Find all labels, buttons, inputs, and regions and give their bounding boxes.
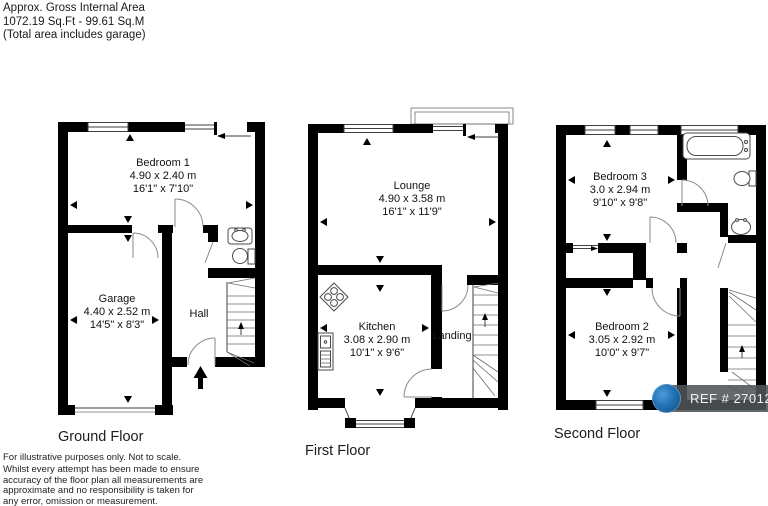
header-line-3: (Total area includes garage) bbox=[3, 29, 146, 43]
second-windows bbox=[573, 126, 738, 410]
room-name: Landing bbox=[415, 330, 489, 343]
room-metric: 4.90 x 3.58 m bbox=[342, 193, 482, 206]
room-label-landing: Landing bbox=[415, 330, 489, 343]
bathroom-fixtures bbox=[683, 133, 756, 235]
disclaimer-paragraph: Whilst every attempt has been made to en… bbox=[3, 465, 203, 506]
room-name: Garage bbox=[47, 293, 187, 306]
room-label-bedroom3: Bedroom 3 3.0 x 2.94 m 9'10" x 9'8" bbox=[550, 171, 690, 210]
floorplan-page: Approx. Gross Internal Area 1072.19 Sq.F… bbox=[0, 0, 768, 506]
room-imperial: 10'0" x 9'7" bbox=[552, 347, 692, 360]
bay-window bbox=[345, 408, 415, 428]
basin-icon bbox=[732, 220, 751, 235]
balcony-outline bbox=[411, 108, 513, 124]
room-label-garage: Garage 4.40 x 2.52 m 14'5" x 8'3" bbox=[47, 293, 187, 332]
room-imperial: 16'1" x 7'10" bbox=[93, 183, 233, 196]
room-imperial: 16'1" x 11'9" bbox=[342, 206, 482, 219]
room-label-lounge: Lounge 4.90 x 3.58 m 16'1" x 11'9" bbox=[342, 180, 482, 219]
room-imperial: 10'1" x 9'6" bbox=[307, 347, 447, 360]
header-line-2: 1072.19 Sq.Ft - 99.61 Sq.M bbox=[3, 16, 146, 30]
room-name: Bedroom 2 bbox=[552, 321, 692, 334]
reference-number: REF # 2701266 bbox=[690, 391, 768, 406]
room-label-bedroom1: Bedroom 1 4.90 x 2.40 m 16'1" x 7'10" bbox=[93, 157, 233, 196]
room-metric: 3.0 x 2.94 m bbox=[550, 184, 690, 197]
room-metric: 4.40 x 2.52 m bbox=[47, 306, 187, 319]
entrance-arrow-icon bbox=[194, 366, 208, 389]
room-label-hall: Hall bbox=[177, 308, 221, 321]
disclaimer-line-5: any error, omission or measurement. bbox=[3, 497, 203, 506]
ground-floor-plan bbox=[55, 100, 270, 420]
first-floor-plan bbox=[295, 100, 520, 435]
room-imperial: 14'5" x 8'3" bbox=[47, 319, 187, 332]
ground-doors bbox=[133, 199, 215, 365]
first-walls bbox=[308, 124, 508, 410]
room-name: Bedroom 1 bbox=[93, 157, 233, 170]
second-stairs bbox=[728, 290, 756, 398]
first-slider-door bbox=[433, 124, 499, 140]
ground-wc-fixtures bbox=[228, 228, 255, 264]
ground-floor-label: Ground Floor bbox=[58, 429, 143, 445]
room-metric: 4.90 x 2.40 m bbox=[93, 170, 233, 183]
room-label-bedroom2: Bedroom 2 3.05 x 2.92 m 10'0" x 9'7" bbox=[552, 321, 692, 360]
toilet-icon bbox=[248, 249, 255, 264]
room-name: Bedroom 3 bbox=[550, 171, 690, 184]
room-imperial: 9'10" x 9'8" bbox=[550, 197, 690, 210]
second-floor-label: Second Floor bbox=[554, 426, 640, 442]
room-name: Lounge bbox=[342, 180, 482, 193]
agency-logo-icon bbox=[652, 384, 681, 413]
room-metric: 3.05 x 2.92 m bbox=[552, 334, 692, 347]
room-name: Hall bbox=[177, 308, 221, 321]
second-walls bbox=[556, 125, 766, 410]
gross-internal-area-header: Approx. Gross Internal Area 1072.19 Sq.F… bbox=[3, 2, 146, 43]
first-windows bbox=[344, 125, 393, 133]
disclaimer-line-2: Whilst every attempt has been made to en… bbox=[3, 465, 203, 476]
reference-badge: REF # 2701266 bbox=[654, 385, 768, 412]
disclaimer-scale-note: For illustrative purposes only. Not to s… bbox=[3, 452, 181, 463]
first-floor-label: First Floor bbox=[305, 443, 370, 459]
ground-slider-door bbox=[185, 122, 251, 139]
disclaimer-line-4: approximate and no responsibility is tak… bbox=[3, 486, 203, 497]
ground-stairs bbox=[227, 278, 255, 366]
header-line-1: Approx. Gross Internal Area bbox=[3, 2, 146, 16]
